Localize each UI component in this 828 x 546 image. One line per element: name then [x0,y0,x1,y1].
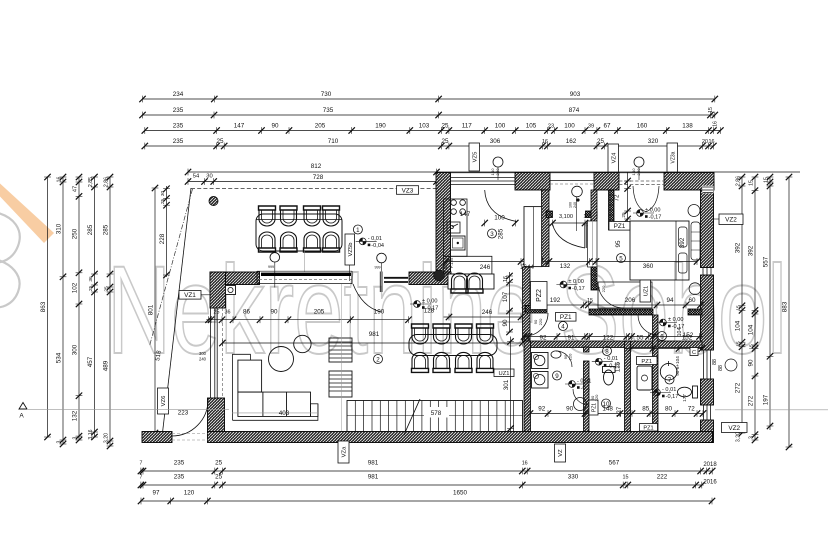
svg-text:240: 240 [199,357,207,362]
svg-text:16: 16 [709,139,715,145]
svg-text:23: 23 [548,124,554,130]
svg-text:VZ3a: VZ3a [670,151,676,163]
svg-text:3: 3 [73,436,79,439]
svg-text:330: 330 [568,474,579,481]
svg-text:90: 90 [270,309,278,316]
svg-text:60: 60 [688,297,696,304]
svg-text:PZ1: PZ1 [614,223,626,230]
svg-text:15: 15 [736,341,742,347]
svg-text:100: 100 [569,202,573,208]
svg-text:92: 92 [539,335,547,342]
svg-text:220: 220 [538,318,543,325]
svg-text:15: 15 [584,336,590,342]
svg-text:489: 489 [103,360,110,371]
svg-text:107: 107 [502,291,509,302]
svg-text:25: 25 [621,212,627,218]
svg-text:47: 47 [73,186,79,192]
svg-text:VZa: VZa [342,446,348,457]
svg-text:310: 310 [56,223,63,234]
svg-text:863: 863 [40,301,47,312]
svg-text:234: 234 [173,91,184,98]
svg-text:557: 557 [763,256,770,267]
svg-text:903: 903 [570,91,581,98]
svg-text:25: 25 [215,460,223,467]
svg-text:- 0,01: - 0,01 [604,356,618,362]
svg-text:228: 228 [159,233,166,244]
svg-text:117: 117 [462,123,473,130]
svg-text:VZ5: VZ5 [472,152,478,163]
svg-text:205: 205 [314,309,325,316]
svg-text:102: 102 [72,282,79,293]
svg-text:100: 100 [494,215,505,222]
svg-text:567: 567 [609,460,620,467]
svg-text:A: A [19,413,24,420]
svg-text:25: 25 [441,123,449,130]
svg-text:104: 104 [735,320,742,331]
svg-text:190: 190 [375,123,386,130]
svg-text:403: 403 [279,410,290,417]
svg-text:122: 122 [603,335,614,342]
svg-text:VZ5b: VZ5b [348,243,354,257]
svg-text:206: 206 [625,297,636,304]
svg-text:197: 197 [763,394,770,405]
svg-text:4: 4 [561,323,565,330]
svg-text:67: 67 [603,123,611,130]
svg-text:2,40: 2,40 [496,169,500,176]
svg-text:285: 285 [498,228,505,239]
svg-text:25: 25 [441,138,449,145]
svg-text:15: 15 [587,298,593,304]
svg-text:874: 874 [569,107,580,114]
svg-text:103: 103 [419,123,430,130]
svg-text:PZ1: PZ1 [643,426,653,432]
svg-text:205: 205 [315,123,326,130]
svg-text:2,86: 2,86 [104,177,110,187]
svg-text:9: 9 [555,373,559,380]
svg-text:981: 981 [369,331,380,338]
svg-text:534: 534 [56,352,63,363]
svg-text:220: 220 [568,353,573,360]
svg-text:-0,04: -0,04 [371,243,384,249]
svg-text:16: 16 [542,139,548,145]
svg-text:3,20: 3,20 [736,432,742,442]
svg-text:578: 578 [431,410,442,417]
svg-text:25: 25 [214,310,220,316]
svg-text:272: 272 [748,395,755,406]
svg-text:54: 54 [193,174,200,180]
svg-text:306: 306 [490,138,501,145]
svg-text:-0,17: -0,17 [666,394,679,400]
svg-text:25: 25 [216,138,224,145]
svg-text:90: 90 [748,359,755,367]
svg-text:VZ2: VZ2 [728,425,740,432]
svg-text:72: 72 [688,406,696,413]
svg-text:3: 3 [749,436,755,439]
svg-text:6: 6 [660,333,664,340]
svg-text:999: 999 [268,265,274,269]
svg-text:3,20: 3,20 [104,433,110,443]
svg-text:801: 801 [148,304,155,315]
svg-text:300: 300 [199,351,207,356]
svg-text:16: 16 [57,177,63,183]
svg-text:120: 120 [184,490,195,497]
svg-text:80: 80 [665,406,673,413]
svg-text:162: 162 [566,138,577,145]
svg-text:272: 272 [735,382,742,393]
svg-text:235: 235 [174,474,185,481]
svg-text:148: 148 [602,406,613,413]
svg-text:VZ4: VZ4 [611,152,617,163]
svg-text:90-6+104: 90-6+104 [675,356,680,376]
svg-text:- 0,01: - 0,01 [368,236,382,242]
svg-text:36: 36 [88,276,94,282]
svg-text:16: 16 [627,336,633,342]
svg-text:UZ1: UZ1 [643,286,649,297]
svg-text:39: 39 [588,124,594,130]
svg-text:5: 5 [619,255,623,262]
svg-text:25: 25 [597,138,605,145]
svg-text:100: 100 [564,123,575,130]
svg-text:883: 883 [782,301,789,312]
svg-text:91: 91 [567,335,575,342]
svg-text:2016: 2016 [703,480,717,486]
svg-text:285: 285 [87,224,94,235]
svg-text:2,85: 2,85 [88,177,94,187]
svg-text:222: 222 [657,474,668,481]
svg-text:3,16: 3,16 [88,429,94,439]
svg-text:25: 25 [441,265,447,271]
svg-text:-0,17: -0,17 [649,215,662,221]
svg-text:90: 90 [271,123,279,130]
svg-text:127: 127 [616,406,623,417]
svg-text:20: 20 [702,139,708,145]
svg-text:981: 981 [368,474,379,481]
svg-text:730: 730 [321,91,332,98]
svg-text:25: 25 [160,199,166,205]
svg-text:VZ1: VZ1 [184,292,196,299]
svg-text:55: 55 [636,335,644,342]
svg-text:250: 250 [72,228,79,239]
svg-text:126: 126 [615,361,622,372]
svg-text:235: 235 [173,138,184,145]
svg-text:15: 15 [583,214,589,220]
svg-text:PZ1: PZ1 [592,403,598,412]
svg-text:999: 999 [375,266,381,270]
svg-text:2,86: 2,86 [736,176,742,186]
svg-text:1,10: 1,10 [632,169,636,176]
svg-text:25: 25 [104,286,110,292]
svg-text:147: 147 [460,211,471,218]
svg-text:285: 285 [103,224,110,235]
svg-text:VZ2: VZ2 [725,217,737,224]
svg-text:235: 235 [173,107,184,114]
svg-text:300: 300 [72,344,79,355]
svg-text:240: 240 [573,202,577,208]
svg-text:220: 220 [601,285,606,292]
svg-text:15: 15 [749,180,755,186]
svg-text:2,40: 2,40 [637,169,641,176]
svg-text:3: 3 [490,231,494,238]
svg-text:± 0,00: ± 0,00 [568,279,584,285]
svg-text:223: 223 [178,410,189,417]
svg-text:2018: 2018 [703,462,717,468]
svg-text:86: 86 [243,309,251,316]
svg-text:95: 95 [615,240,622,248]
svg-text:1,10: 1,10 [491,169,495,176]
svg-text:812: 812 [311,163,322,170]
svg-text:-0,17: -0,17 [572,286,585,292]
svg-text:220: 220 [594,394,599,401]
svg-text:30: 30 [160,191,166,197]
svg-text:7: 7 [668,377,672,384]
svg-text:710: 710 [328,138,339,145]
svg-text:15: 15 [708,107,714,113]
svg-text:± 0,00: ± 0,00 [668,317,684,323]
svg-text:246: 246 [482,309,493,316]
svg-text:3: 3 [57,440,63,443]
svg-text:15: 15 [736,305,742,311]
svg-text:8: 8 [605,348,609,355]
svg-text:16: 16 [503,276,509,282]
svg-text:128: 128 [424,308,435,315]
svg-text:16: 16 [713,121,719,127]
svg-text:981: 981 [368,460,379,467]
svg-text:90: 90 [566,406,574,413]
svg-text:UZ1: UZ1 [499,371,510,377]
svg-text:2: 2 [376,356,380,363]
svg-text:85: 85 [642,406,650,413]
svg-text:1: 1 [356,227,360,234]
svg-text:97: 97 [152,490,160,497]
svg-text:360: 360 [643,263,654,270]
svg-text:36: 36 [225,310,231,316]
svg-text:152: 152 [682,335,693,342]
svg-text:± 0,00: ± 0,00 [645,208,661,214]
svg-text:138: 138 [682,123,693,130]
svg-text:P-165: P-165 [449,257,454,268]
svg-text:PZ2: PZ2 [536,289,543,302]
svg-text:392: 392 [748,245,755,256]
svg-text:C: C [692,350,696,356]
svg-text:25: 25 [88,286,94,292]
svg-text:100: 100 [495,123,506,130]
svg-text:- 0,01: - 0,01 [577,379,591,385]
svg-text:3,100: 3,100 [559,214,573,220]
svg-text:177: 177 [682,394,687,402]
svg-text:235: 235 [173,123,184,130]
svg-text:301: 301 [503,379,510,390]
svg-text:15: 15 [749,344,755,350]
svg-text:735: 735 [323,107,334,114]
svg-text:VZ6: VZ6 [161,396,167,407]
svg-text:147: 147 [234,123,245,130]
svg-text:88: 88 [718,365,724,371]
svg-text:235: 235 [174,460,185,467]
svg-text:92: 92 [538,406,546,413]
svg-text:1650: 1650 [453,490,468,497]
svg-text:728: 728 [313,174,324,181]
svg-text:7: 7 [140,461,143,467]
svg-text:25: 25 [215,474,223,481]
svg-text:16: 16 [522,461,528,467]
svg-text:± 0,00: ± 0,00 [422,299,438,305]
svg-text:16: 16 [523,336,529,342]
svg-text:15: 15 [623,475,629,481]
svg-text:132: 132 [72,410,79,421]
svg-text:PZ1: PZ1 [641,359,652,365]
svg-text:PZ1: PZ1 [560,314,572,321]
svg-text:VZ3: VZ3 [402,187,414,194]
svg-text:392: 392 [679,237,686,248]
svg-text:246: 246 [480,264,491,271]
svg-text:30: 30 [206,174,212,180]
svg-text:15: 15 [764,177,770,183]
svg-text:88: 88 [712,359,718,365]
svg-text:392: 392 [735,242,742,253]
svg-text:-0,1: -0,1 [581,386,591,392]
svg-text:- 0,01: - 0,01 [662,387,676,393]
svg-text:457: 457 [87,356,94,367]
svg-text:104: 104 [748,324,755,335]
svg-text:7: 7 [140,475,143,481]
svg-text:105: 105 [526,123,537,130]
svg-text:190: 190 [374,309,385,316]
svg-text:94: 94 [666,297,674,304]
svg-text:320: 320 [648,138,659,145]
svg-text:192: 192 [550,297,561,304]
svg-text:132: 132 [560,263,571,270]
svg-text:72: 72 [614,194,621,202]
svg-text:90: 90 [502,319,509,327]
svg-text:VZ: VZ [558,449,564,457]
svg-text:160: 160 [637,123,648,130]
